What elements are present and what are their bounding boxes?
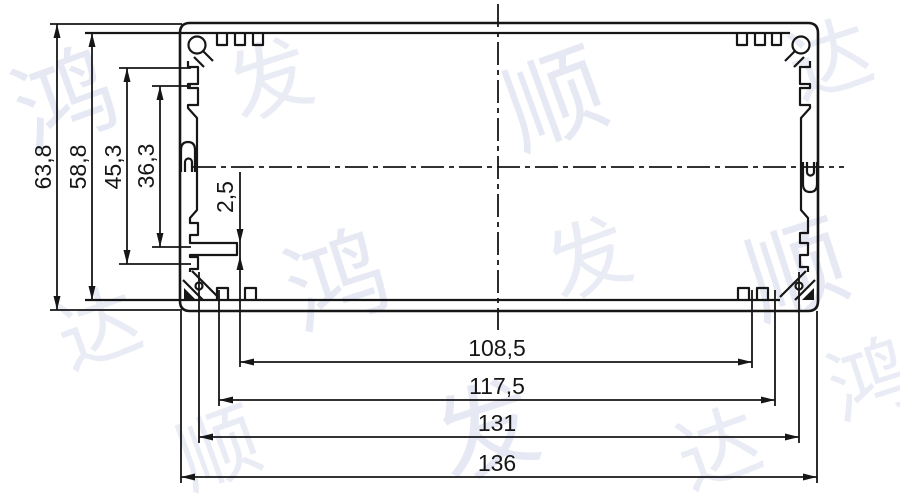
watermark-char: 鸿 <box>817 325 900 437</box>
dim-label-inner-height: 58,8 <box>65 145 91 190</box>
watermark-char: 达 <box>665 393 773 500</box>
watermark-layer: 鸿 发 顺 达 达 鸿 发 顺 顺 发 达 鸿 <box>0 5 900 500</box>
dim-step-width: 117,5 <box>219 373 775 404</box>
dim-label-rib-thickness: 2,5 <box>212 181 238 213</box>
watermark-char: 顺 <box>488 28 622 172</box>
dim-label-inner-width: 131 <box>478 410 516 436</box>
watermark-char: 鸿 <box>271 211 402 353</box>
dim-label-overall-width: 136 <box>478 450 516 476</box>
dim-label-overall-height: 63,8 <box>30 145 56 190</box>
teeth-top-right <box>737 33 781 45</box>
dim-label-step-width: 117,5 <box>469 373 525 399</box>
screw-boss-top-left <box>189 37 206 54</box>
watermark-char: 发 <box>217 25 323 137</box>
technical-drawing: 鸿 发 顺 达 达 鸿 发 顺 顺 发 达 鸿 <box>0 0 900 500</box>
teeth-bottom-left <box>217 288 256 300</box>
dim-rib-thickness: 2,5 <box>212 172 244 367</box>
screw-channel-left <box>181 142 195 172</box>
drawing-page: 鸿 发 顺 达 达 鸿 发 顺 顺 发 达 鸿 <box>0 0 900 500</box>
dim-label-groove-span-outer: 45,3 <box>100 145 126 190</box>
dim-label-slot-width: 108,5 <box>468 335 526 361</box>
dim-groove-span-inner: 36,3 <box>133 86 164 247</box>
watermark-char: 达 <box>45 273 153 387</box>
dim-label-groove-span-inner: 36,3 <box>133 144 159 189</box>
watermark-char: 顺 <box>731 201 862 343</box>
